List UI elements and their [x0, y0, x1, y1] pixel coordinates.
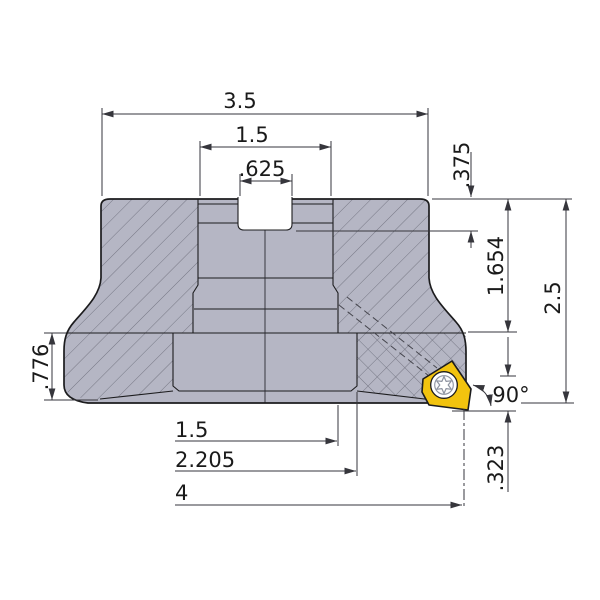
- key-slot: [238, 196, 292, 230]
- dim-overall-height: 2.5: [521, 199, 574, 403]
- dim-overall-width-label: 3.5: [223, 89, 256, 113]
- dim-lead-angle: 90°: [473, 383, 530, 407]
- dim-recess-depth-label: .375: [450, 142, 474, 189]
- dim-cutting-diameter-label: 4: [175, 481, 188, 505]
- dim-flange-height-label: .776: [29, 344, 53, 391]
- dim-neck-height: 1.654: [468, 199, 517, 332]
- drawing-canvas: 3.5 1.5 .625 .375 1.654: [0, 0, 600, 600]
- dim-lead-angle-label: 90°: [492, 383, 529, 407]
- dim-tip-offset-label: .323: [484, 445, 508, 492]
- dim-keyslot-width-label: .625: [239, 157, 286, 181]
- dim-hub-width-label: 1.5: [235, 123, 268, 147]
- dim-neck-height-label: 1.654: [484, 236, 508, 296]
- dim-bore-diameter-label: 1.5: [175, 418, 208, 442]
- dim-keyslot-width: .625: [239, 157, 292, 196]
- dim-overall-height-label: 2.5: [541, 281, 565, 314]
- cutter-body-section: [64, 196, 466, 403]
- dim-hub-diameter-label: 2.205: [175, 448, 235, 472]
- torx-screw-icon: [431, 372, 458, 399]
- drawing-page: 3.5 1.5 .625 .375 1.654: [0, 0, 600, 600]
- dim-bore-diameter: 1.5: [175, 405, 338, 446]
